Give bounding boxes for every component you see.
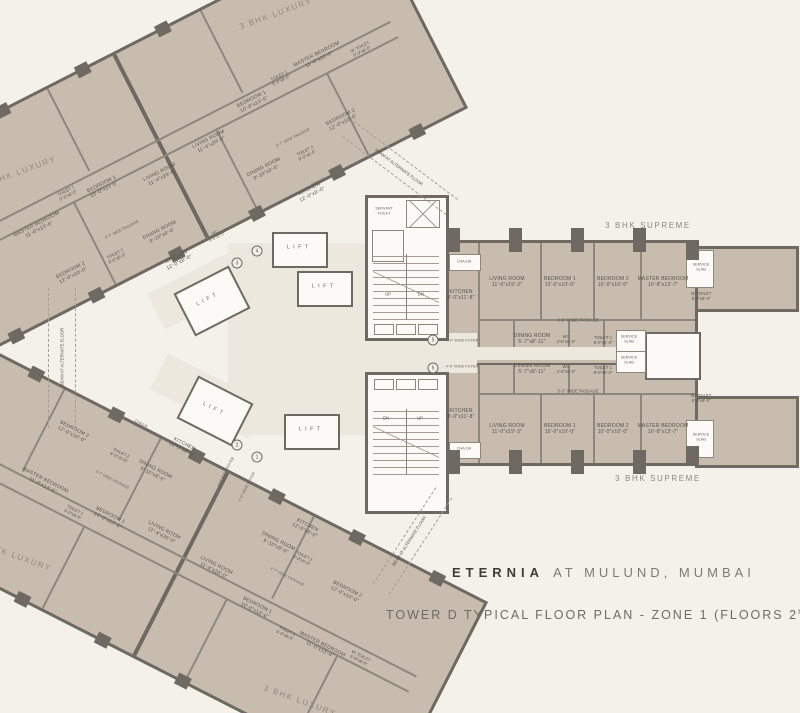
stair-arrow <box>373 254 439 320</box>
project-location: AT MULUND, MUMBAI <box>553 565 755 580</box>
service-duct <box>645 332 701 380</box>
wall-stub <box>14 591 32 608</box>
wall-stub <box>248 205 266 222</box>
unit-number-1: 1 <box>252 452 263 463</box>
wall <box>540 393 542 463</box>
meter-box <box>418 324 438 335</box>
wall-stub <box>154 20 172 37</box>
wall-stub <box>94 632 112 649</box>
label-3-bhk-supreme: 3 BHK SUPREME <box>605 221 691 231</box>
wall-stub <box>509 228 522 252</box>
stair-treads <box>373 409 439 475</box>
wall <box>47 88 91 171</box>
wall <box>295 654 339 713</box>
stair-arrow <box>373 409 439 475</box>
wall-stub <box>408 123 426 140</box>
wall <box>42 525 86 609</box>
lift-shaft <box>297 271 353 307</box>
project-title: ETERNIAAT MULUND, MUMBAI <box>452 564 755 582</box>
wall-stub <box>633 450 646 474</box>
wall-stub <box>7 327 25 344</box>
meter-box <box>396 379 416 390</box>
wall <box>480 393 695 395</box>
wall <box>513 363 515 393</box>
wall-stub <box>88 287 106 304</box>
lift-shaft <box>272 232 328 268</box>
wall-stub <box>268 488 286 505</box>
wall-stub <box>27 366 45 383</box>
wall-stub <box>428 570 446 587</box>
meter-box <box>374 324 394 335</box>
wall-stub <box>571 228 584 252</box>
wall-stub <box>0 102 11 119</box>
wall-stub <box>509 450 522 474</box>
stair-treads <box>373 254 439 320</box>
wall-stub <box>74 61 92 78</box>
wall <box>184 598 228 682</box>
wall <box>73 201 117 285</box>
wall-stub <box>447 450 460 474</box>
wall-stub <box>348 529 366 546</box>
wall <box>593 243 595 319</box>
chajja-box <box>449 254 481 271</box>
wall <box>568 363 570 393</box>
wall <box>593 393 595 463</box>
wall-stub <box>447 228 460 252</box>
wall-stub <box>108 406 126 423</box>
label-3-bhk-supreme: 3 BHK SUPREME <box>615 474 701 484</box>
wall <box>200 10 244 93</box>
wall-stub <box>188 447 206 464</box>
meter-box <box>396 324 416 335</box>
wall <box>0 446 417 677</box>
wall <box>540 243 542 319</box>
wall-stub <box>686 240 699 260</box>
wall <box>568 319 570 349</box>
wall <box>513 319 515 349</box>
wall <box>640 243 642 319</box>
wall <box>113 54 210 238</box>
wall <box>118 438 162 521</box>
floor-plan-canvas: 3 BHK LUXURY3 BHK LUXURY3 BHK LUXURY3 BH… <box>0 0 800 713</box>
wall <box>0 36 398 267</box>
wall <box>603 363 605 393</box>
beam-line <box>48 288 76 428</box>
meter-box <box>418 379 438 390</box>
plan-subtitle-text: TOWER D TYPICAL FLOOR PLAN - ZONE 1 (FLO… <box>386 608 798 622</box>
wall <box>215 128 259 212</box>
service-slab-box <box>616 330 646 352</box>
wall-stub <box>571 450 584 474</box>
wall <box>271 516 315 599</box>
foyer-corridor <box>443 347 645 360</box>
wall <box>603 319 605 349</box>
wall-stub <box>168 246 186 263</box>
plan-subtitle: TOWER D TYPICAL FLOOR PLAN - ZONE 1 (FLO… <box>386 607 800 622</box>
project-name: ETERNIA <box>452 565 544 580</box>
lift-shaft <box>284 414 340 450</box>
service-slab-box <box>616 351 646 373</box>
wall-stub <box>686 446 699 466</box>
wall-stub <box>633 228 646 252</box>
staircase-top <box>365 195 449 341</box>
meter-box <box>374 379 394 390</box>
wall-stub <box>328 164 346 181</box>
wall <box>133 472 230 656</box>
